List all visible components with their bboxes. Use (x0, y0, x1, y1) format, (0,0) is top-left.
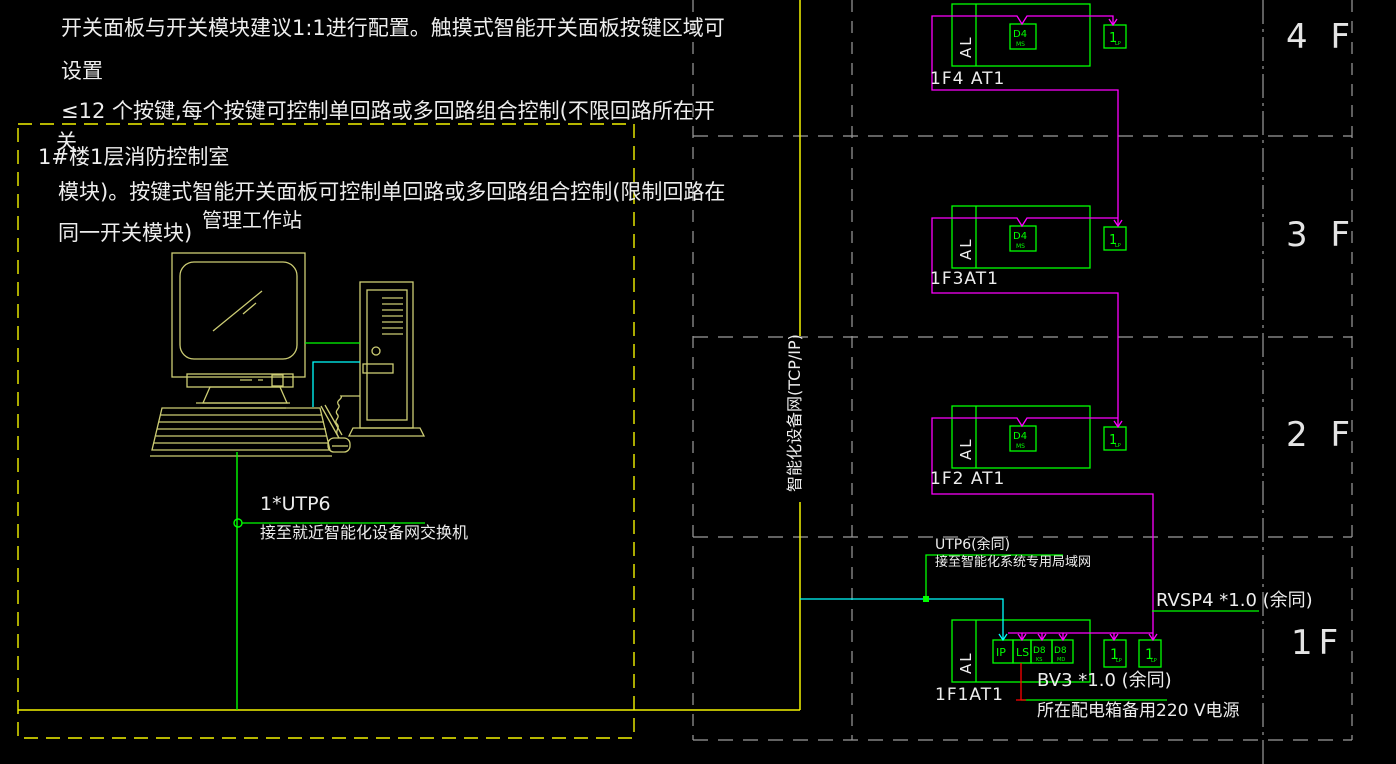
dimmer-module-sub-4f: MS (1016, 41, 1025, 48)
al-label-3f: AL (957, 237, 975, 260)
panel-sub-3f: LP (1115, 243, 1121, 249)
dimmer-module-label-3f: D4 (1013, 231, 1027, 242)
panel-sub-2f: LP (1115, 443, 1121, 449)
note-line-6: 同一开关模块) (58, 221, 192, 245)
keyboard (150, 408, 332, 456)
al-label-2f: AL (957, 437, 975, 460)
monitor-stand (203, 387, 287, 403)
at-panel-label-1f: 1F1AT1 (935, 686, 1004, 706)
tower-base (349, 428, 424, 436)
note-line-2: 设置 (61, 59, 103, 83)
workstation-label: 管理工作站 (202, 209, 302, 232)
uplink-node (234, 519, 242, 527)
lan-cable-label: UTP6(余同) (935, 537, 1010, 553)
al-label-1f: AL (957, 651, 975, 674)
bus-cable-label: RVSP4 *1.0 (余同) (1156, 591, 1313, 612)
screen-glare (213, 291, 262, 331)
note-line-3: ≤12 个按键,每个按键可控制单回路或多回路组合控制(不限回路所在开 (61, 99, 715, 123)
block-labels: AL AL AL AL D4 MS 1 LP D4 MS 1 LP D4 MS … (957, 29, 1157, 674)
arrows-1f-modules (1018, 634, 1118, 640)
dimmer-module-sub-3f: MS (1016, 243, 1025, 250)
cad-diagram-canvas: AL AL AL AL D4 MS 1 LP D4 MS 1 LP D4 MS … (0, 0, 1396, 764)
dimmer-module-label-4f: D4 (1013, 29, 1027, 40)
d8-module-sub-2: MD (1057, 657, 1065, 663)
note-line-5: 模块)。按键式智能开关面板可控制单回路或多回路组合控制(限制回路在 (58, 180, 725, 204)
monitor-tower-wire-cyan (313, 362, 360, 407)
stubs-1f (1022, 633, 1114, 640)
at-panel-label-2f: 1F2 AT1 (930, 470, 1005, 490)
at-panel-label-3f: 1F3AT1 (930, 270, 999, 290)
uplink-cable-label: 1*UTP6 (260, 494, 331, 516)
al-panel-2f (952, 406, 1126, 468)
lan-cable-desc: 接至智能化系统专用局域网 (935, 556, 1091, 571)
control-room-label: 1#楼1层消防控制室 (38, 145, 229, 169)
panel-sub-1f-a: LP (1116, 658, 1122, 664)
tower-case (349, 282, 424, 436)
tower-power-button (372, 347, 380, 355)
stylus (321, 405, 342, 438)
note-line-1: 开关面板与开关模块建议1:1进行配置。触摸式智能开关面板按键区域可 (61, 16, 725, 40)
panel-sub-4f: LP (1115, 41, 1121, 47)
floor-blocks (952, 4, 1161, 682)
al-label-4f: AL (957, 35, 975, 58)
lan-junction-node (923, 596, 929, 602)
dimmer-module-label-2f: D4 (1013, 431, 1027, 442)
power-cable-label: BV3 *1.0 (余同) (1037, 671, 1172, 692)
ip-module-label: IP (996, 646, 1006, 659)
al-panel-3f (952, 206, 1126, 268)
backbone-label: 智能化设备网(TCP/IP) (786, 332, 804, 492)
floor-name-3f: 3 F (1286, 216, 1356, 255)
power-cable-desc: 所在配电箱备用220 V电源 (1037, 702, 1239, 722)
workstation-drawing (150, 253, 424, 456)
crt-monitor (172, 253, 305, 408)
at-panel-label-4f: 1F4 AT1 (930, 70, 1005, 90)
floor-name-4f: 4 F (1286, 18, 1356, 57)
d8-module-label-1: D8 (1033, 646, 1046, 656)
d8-module-label-2: D8 (1054, 646, 1067, 656)
panel-sub-1f-b: LP (1151, 658, 1157, 664)
monitor-base (196, 403, 290, 408)
tower-vents (382, 298, 403, 334)
d8-module-sub-1: KS (1036, 657, 1042, 663)
al-panel-4f (952, 4, 1126, 66)
dimmer-module-sub-2f: MS (1016, 443, 1025, 450)
floor-name-1f: 1F (1291, 624, 1344, 663)
floor-name-2f: 2 F (1286, 416, 1356, 455)
mouse (328, 396, 360, 452)
uplink-cable-desc: 接至就近智能化设备网交换机 (260, 524, 468, 542)
ls-module-label: LS (1016, 646, 1029, 659)
